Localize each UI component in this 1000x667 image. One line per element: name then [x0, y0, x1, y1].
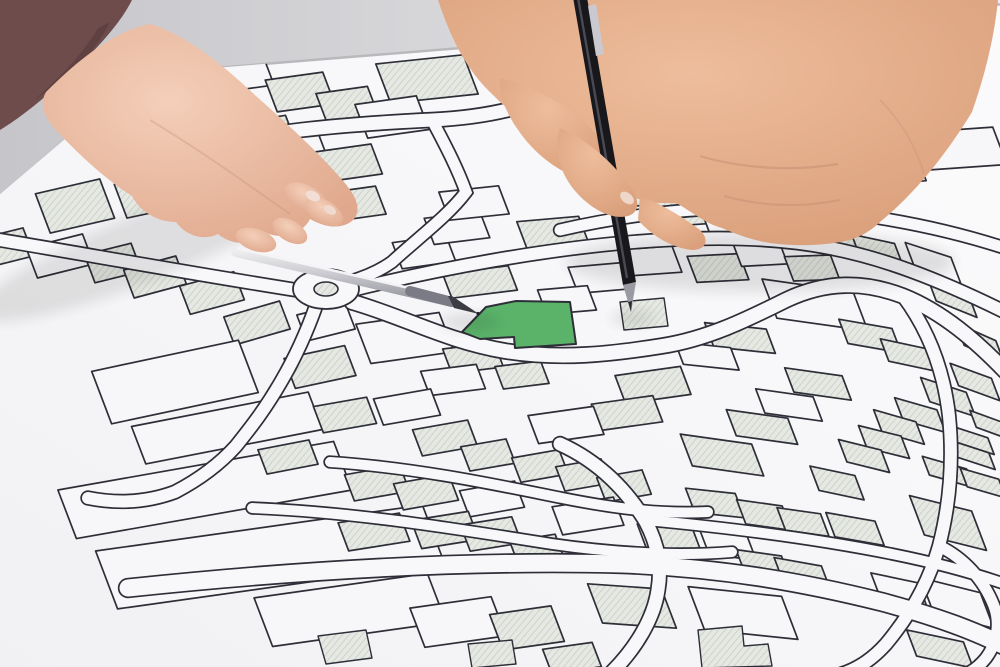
- photo-scene: [0, 0, 1000, 667]
- building-footprint: [318, 630, 372, 664]
- parcel: [495, 361, 549, 389]
- parcel: [376, 55, 478, 103]
- roundabout-island: [314, 282, 338, 296]
- building-footprint: [468, 640, 516, 667]
- cadastral-map-photo: [0, 0, 1000, 667]
